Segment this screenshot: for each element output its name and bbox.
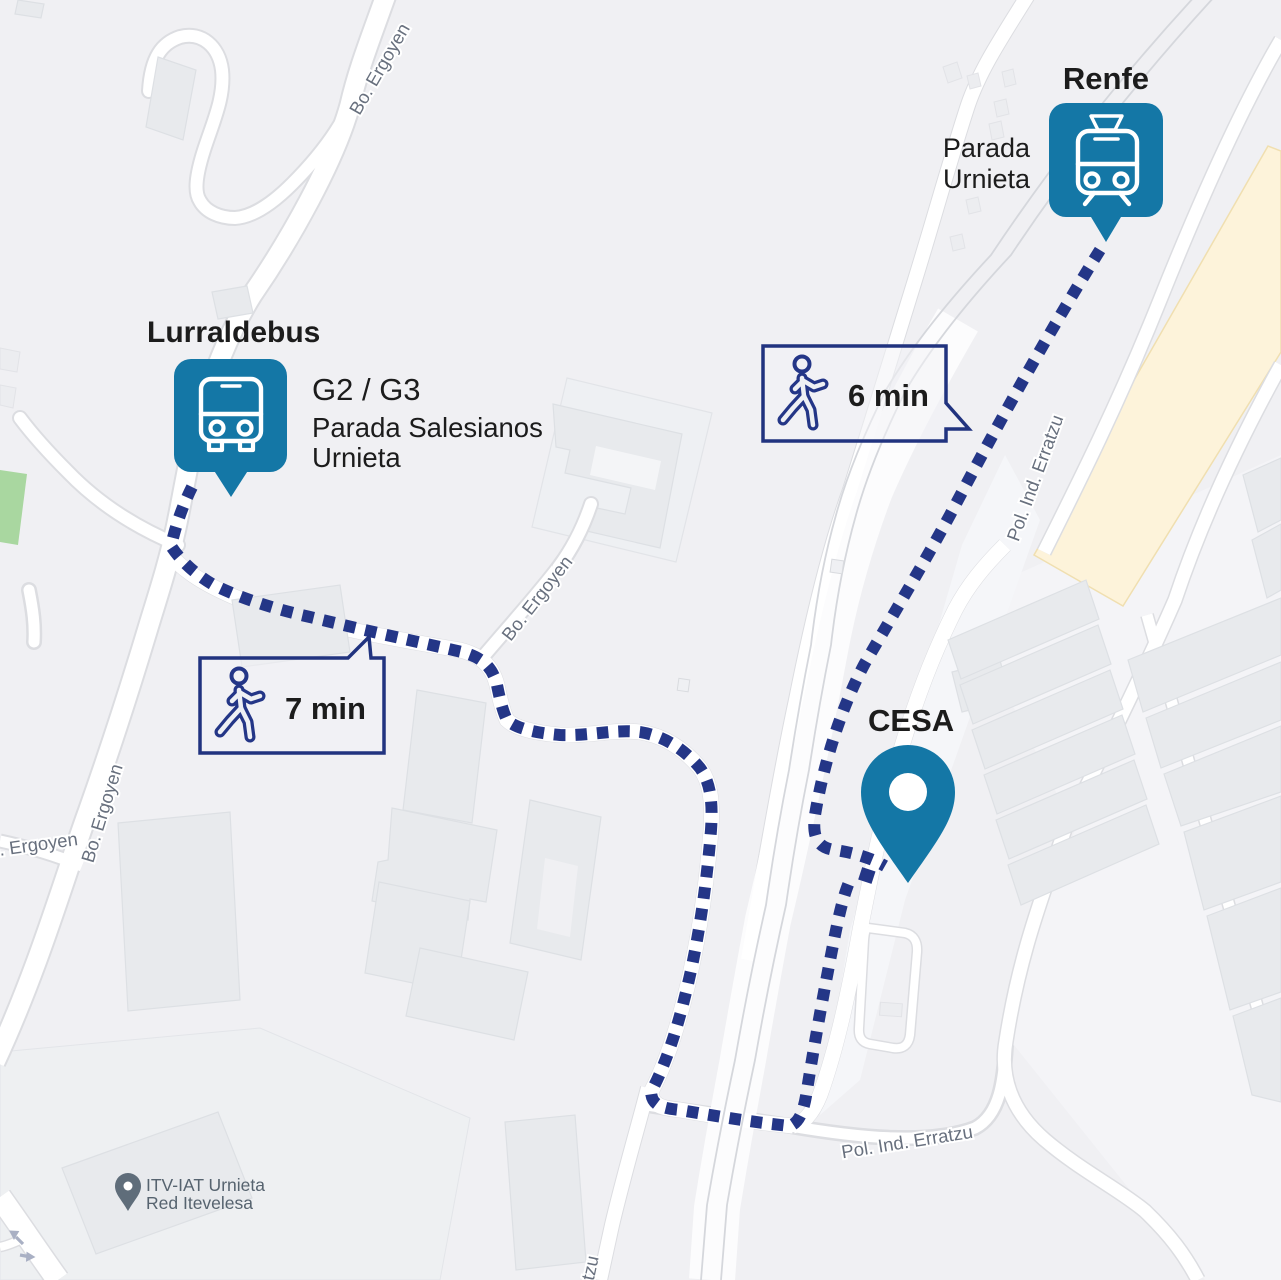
svg-text:Red Itevelesa: Red Itevelesa bbox=[146, 1193, 253, 1213]
svg-text:Urnieta: Urnieta bbox=[312, 442, 401, 473]
svg-text:G2 / G3: G2 / G3 bbox=[312, 372, 421, 407]
svg-text:Parada Salesianos: Parada Salesianos bbox=[312, 412, 543, 443]
svg-text:Renfe: Renfe bbox=[1063, 61, 1149, 96]
svg-text:Urnieta: Urnieta bbox=[943, 164, 1031, 194]
svg-text:6 min: 6 min bbox=[848, 378, 929, 413]
svg-text:7 min: 7 min bbox=[285, 691, 366, 726]
svg-text:CESA: CESA bbox=[868, 703, 954, 738]
svg-text:Lurraldebus: Lurraldebus bbox=[147, 316, 320, 349]
svg-text:Parada: Parada bbox=[943, 133, 1031, 163]
svg-text:ITV-IAT Urnieta: ITV-IAT Urnieta bbox=[146, 1175, 265, 1195]
